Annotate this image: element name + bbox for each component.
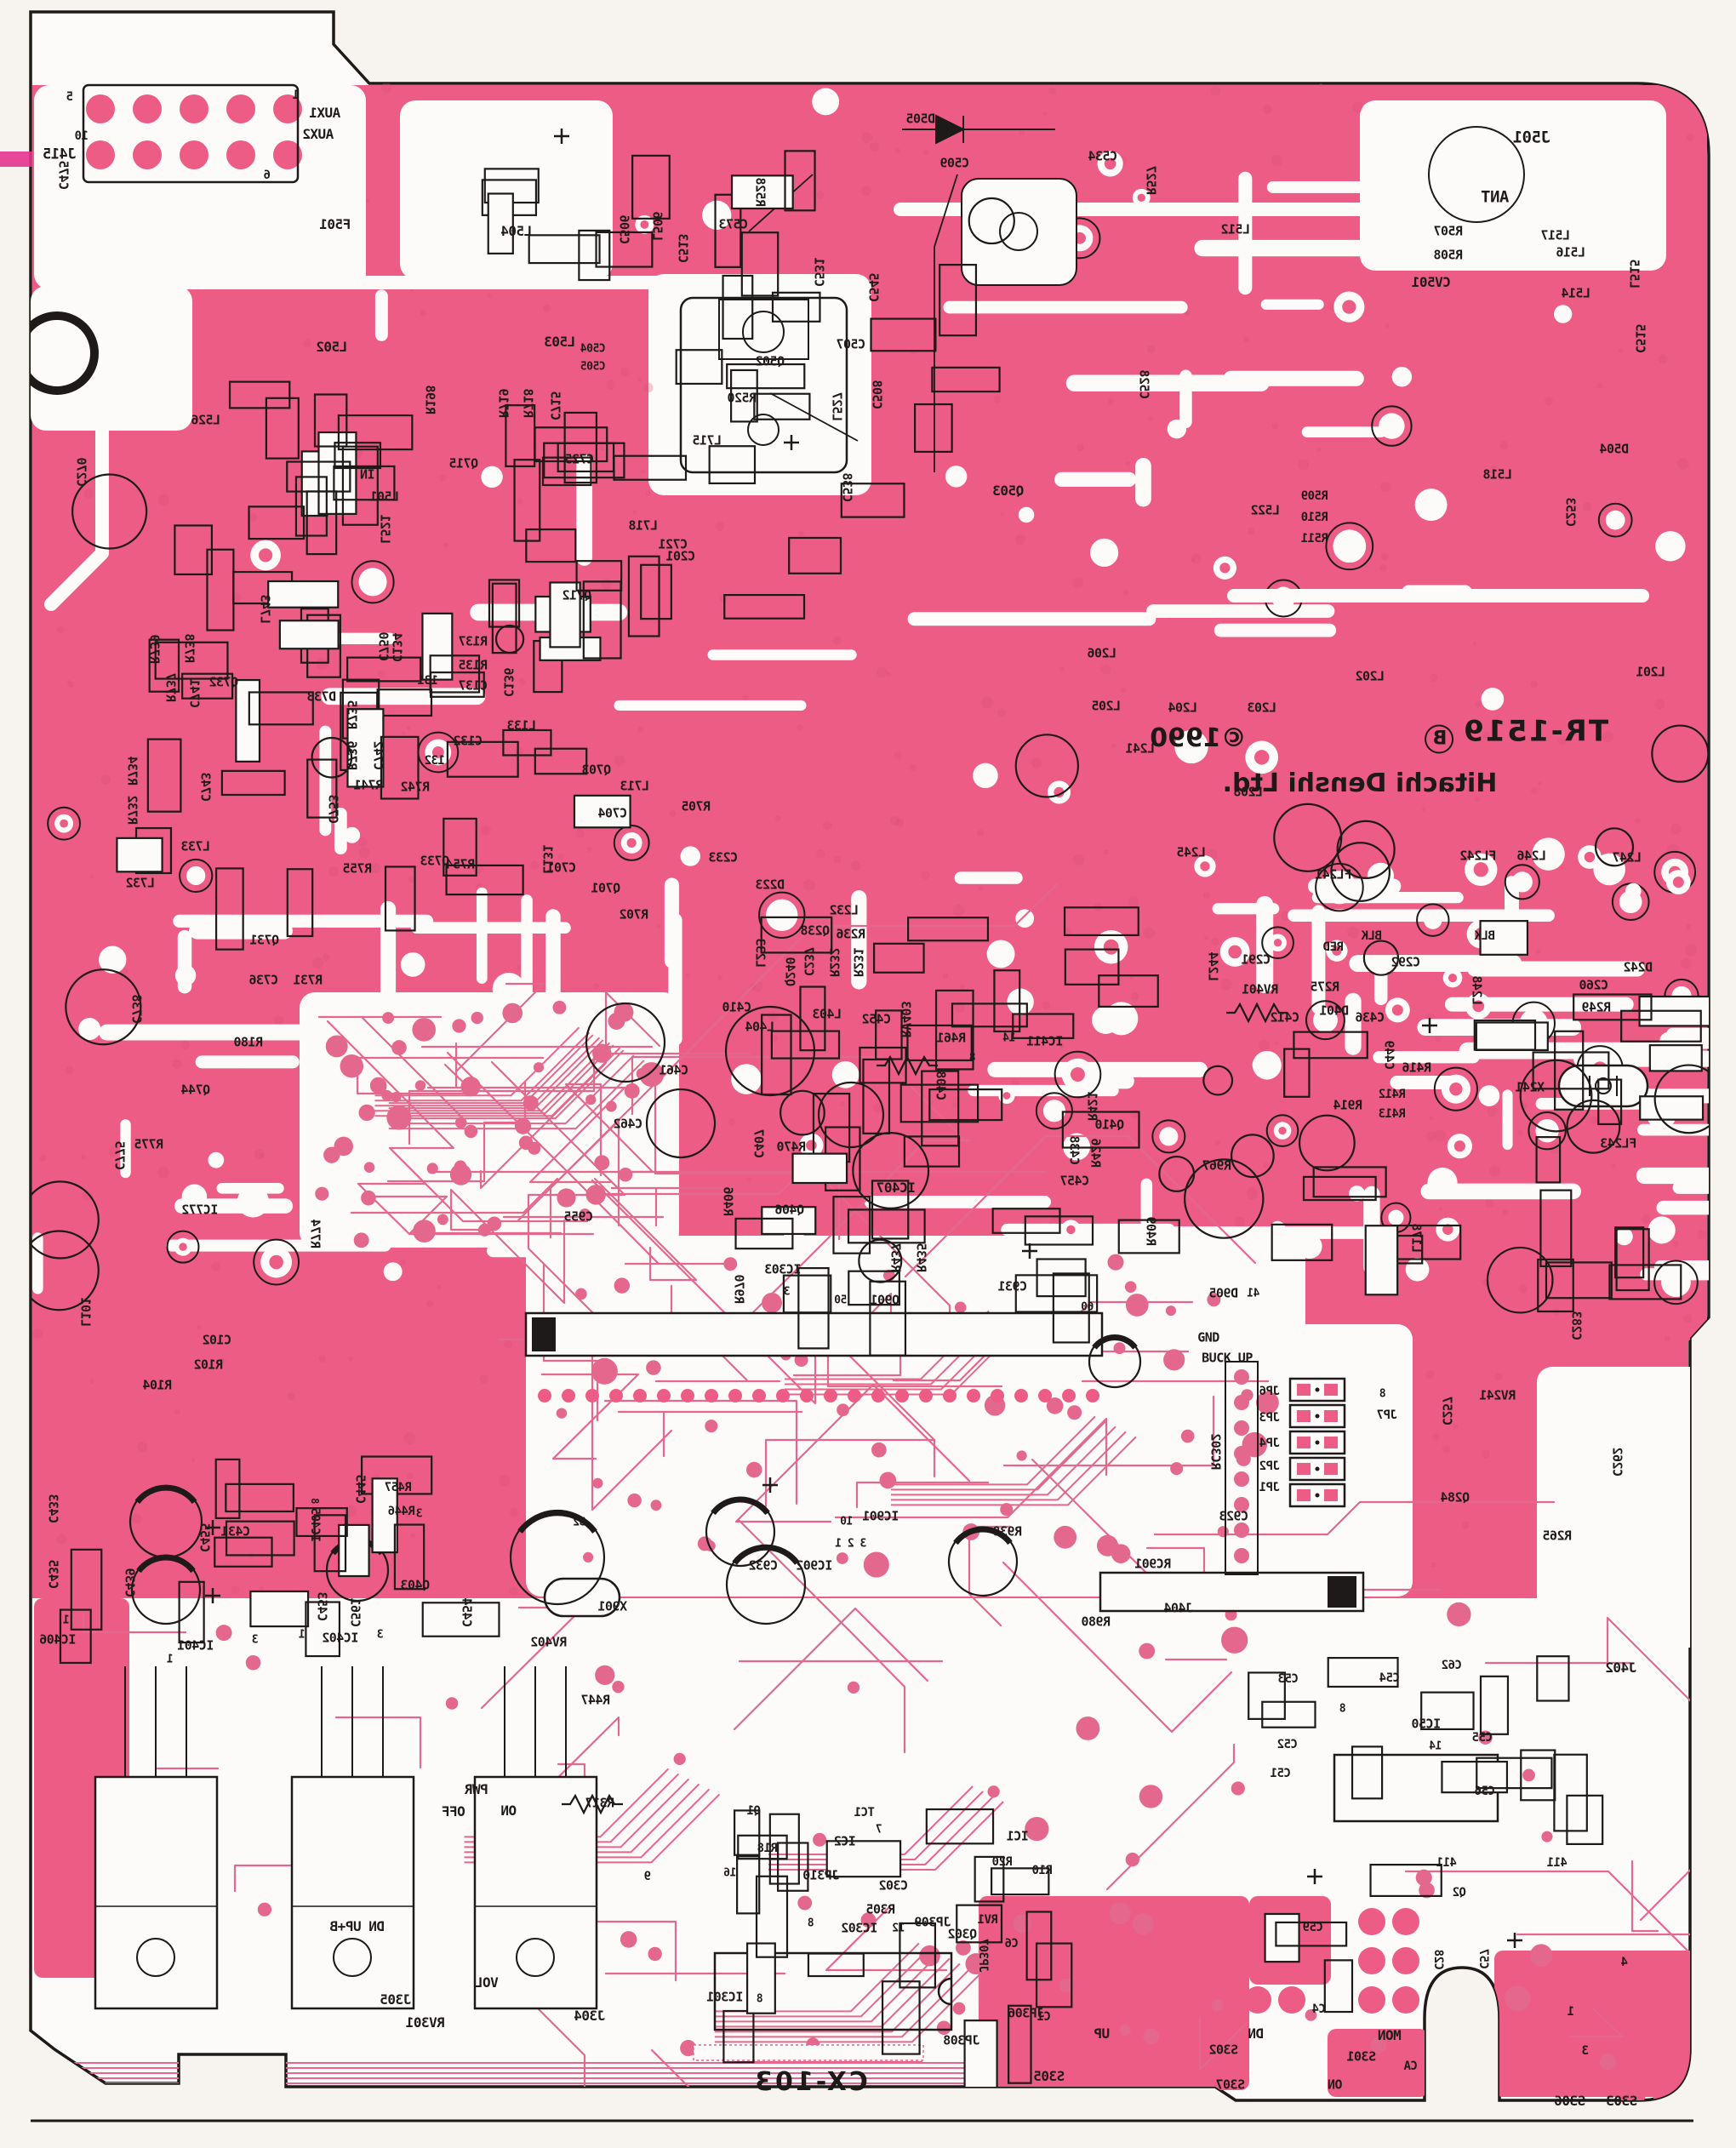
copper-artwork-svg: [0, 0, 1736, 2148]
pcb-film-scan: TR-1519B ©1990 Hitachi Denshi Ltd. CX-10…: [0, 0, 1736, 2148]
